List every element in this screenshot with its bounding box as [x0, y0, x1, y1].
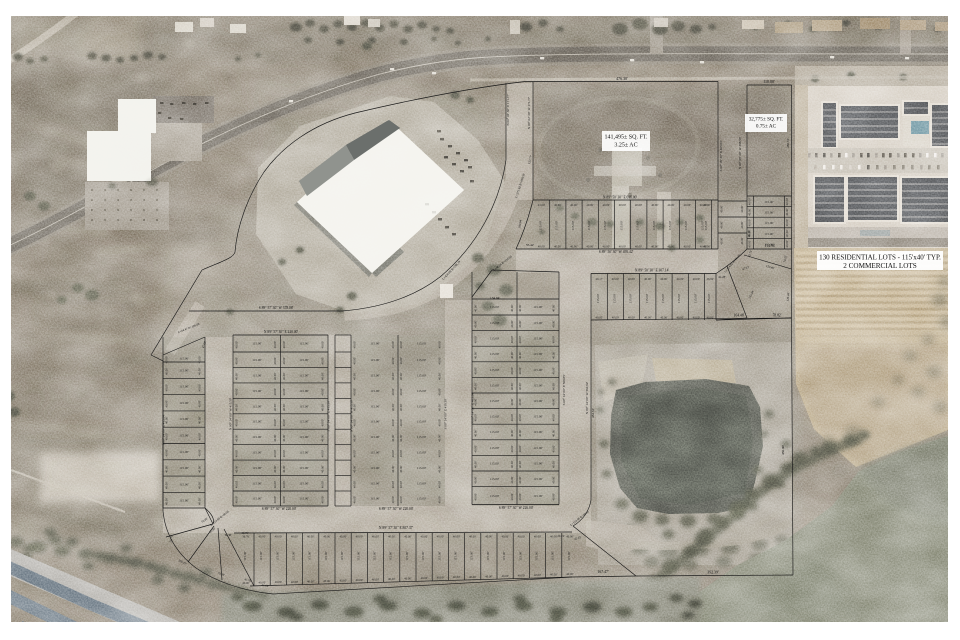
svg-text:40.00': 40.00'	[438, 434, 442, 442]
svg-text:40.00': 40.00'	[619, 203, 627, 207]
svg-text:115.00': 115.00'	[179, 482, 189, 486]
svg-text:115.00': 115.00'	[370, 420, 380, 424]
svg-text:40.00': 40.00'	[510, 493, 514, 501]
svg-text:40.00': 40.00'	[198, 497, 202, 505]
svg-text:115.00': 115.00'	[179, 368, 189, 372]
svg-text:115.00': 115.00'	[533, 494, 543, 498]
svg-text:40.00': 40.00'	[391, 480, 395, 488]
svg-text:40.00': 40.00'	[282, 449, 286, 457]
svg-text:36.76': 36.76'	[242, 535, 250, 539]
svg-text:115.00': 115.00'	[370, 373, 380, 377]
svg-text:34.38': 34.38'	[224, 533, 232, 537]
svg-text:40.00': 40.00'	[552, 351, 556, 359]
svg-text:40.00': 40.00'	[474, 398, 478, 406]
svg-text:141,495± SQ. FT.: 141,495± SQ. FT.	[604, 135, 648, 141]
svg-text:115.00': 115.00'	[764, 211, 774, 215]
svg-text:115.00': 115.00'	[437, 551, 441, 561]
svg-text:40.00': 40.00'	[644, 316, 652, 320]
svg-text:40.00': 40.00'	[485, 574, 493, 578]
svg-text:40.00': 40.00'	[391, 357, 395, 365]
svg-text:115.00': 115.00'	[324, 551, 328, 561]
svg-text:115.00': 115.00'	[490, 383, 500, 387]
svg-text:40.00': 40.00'	[323, 535, 331, 539]
svg-text:40.00': 40.00'	[720, 237, 724, 245]
svg-text:40.00': 40.00'	[282, 372, 286, 380]
svg-text:115.00': 115.00'	[299, 373, 309, 377]
svg-text:S 00° 14' 00" E 568.85': S 00° 14' 00" E 568.85'	[562, 374, 566, 405]
svg-text:40.00': 40.00'	[353, 465, 357, 473]
svg-text:40.00': 40.00'	[275, 535, 283, 539]
svg-text:115.00': 115.00'	[490, 415, 500, 419]
svg-text:40.00': 40.00'	[273, 357, 277, 365]
svg-text:115.00': 115.00'	[259, 551, 263, 561]
svg-text:40.00': 40.00'	[273, 480, 277, 488]
svg-text:115.00': 115.00'	[668, 220, 672, 230]
svg-text:115.00': 115.00'	[535, 551, 539, 561]
svg-text:110.00': 110.00'	[763, 79, 775, 84]
svg-text:40.00': 40.00'	[399, 480, 403, 488]
svg-text:115.00': 115.00'	[243, 551, 247, 561]
svg-text:40.00': 40.00'	[165, 367, 169, 375]
svg-text:115.00': 115.00'	[308, 551, 312, 561]
svg-text:40.00': 40.00'	[635, 245, 643, 249]
svg-text:40.00': 40.00'	[552, 320, 556, 328]
svg-text:167.47': 167.47'	[597, 570, 608, 574]
svg-text:115.00': 115.00'	[252, 373, 262, 377]
svg-text:40.00': 40.00'	[235, 434, 239, 442]
svg-text:115.00': 115.00'	[636, 220, 640, 230]
svg-text:40.00': 40.00'	[552, 413, 556, 421]
svg-text:40.00': 40.00'	[391, 372, 395, 380]
svg-text:40.00': 40.00'	[438, 372, 442, 380]
svg-text:40.00': 40.00'	[554, 203, 562, 207]
svg-text:40.00': 40.00'	[165, 497, 169, 505]
svg-text:40.00': 40.00'	[586, 245, 594, 249]
svg-text:40.00': 40.00'	[273, 372, 277, 380]
svg-text:40.00': 40.00'	[748, 208, 752, 216]
svg-text:130 RESIDENTIAL LOTS - 115'x40: 130 RESIDENTIAL LOTS - 115'x40' TYP.	[819, 254, 941, 262]
svg-text:115.00': 115.00'	[652, 220, 656, 230]
svg-text:115.00': 115.00'	[490, 321, 500, 325]
svg-text:40.00': 40.00'	[550, 573, 558, 577]
svg-text:115.00': 115.00'	[417, 358, 427, 362]
svg-text:40.00': 40.00'	[391, 449, 395, 457]
svg-text:40.00': 40.00'	[258, 581, 266, 585]
svg-text:40.00': 40.00'	[391, 341, 395, 349]
svg-text:40.00': 40.00'	[391, 434, 395, 442]
svg-text:40.00': 40.00'	[273, 388, 277, 396]
svg-text:40.00': 40.00'	[785, 219, 789, 227]
svg-text:40.00': 40.00'	[518, 382, 522, 390]
svg-text:115.00': 115.00'	[179, 417, 189, 421]
svg-text:40.00': 40.00'	[235, 496, 239, 504]
svg-text:40.00': 40.00'	[602, 203, 610, 207]
svg-text:40.00': 40.00'	[566, 535, 574, 539]
svg-text:40.00': 40.00'	[619, 245, 627, 249]
svg-text:115.00': 115.00'	[518, 551, 522, 561]
svg-text:40.00': 40.00'	[235, 480, 239, 488]
svg-text:115.00': 115.00'	[490, 494, 500, 498]
svg-text:40.00': 40.00'	[693, 316, 701, 320]
svg-text:40.00': 40.00'	[165, 384, 169, 392]
svg-text:40.00': 40.00'	[534, 573, 542, 577]
svg-text:40.00': 40.00'	[353, 372, 357, 380]
svg-text:392.39': 392.39'	[707, 571, 718, 575]
svg-text:40.00': 40.00'	[420, 535, 428, 539]
svg-text:40.00': 40.00'	[273, 434, 277, 442]
svg-text:40.00': 40.00'	[748, 229, 752, 237]
svg-text:40.00': 40.00'	[437, 535, 445, 539]
svg-text:40.00': 40.00'	[474, 367, 478, 375]
svg-text:40.00': 40.00'	[510, 413, 514, 421]
svg-text:40.00': 40.00'	[391, 419, 395, 427]
svg-text:115.00': 115.00'	[417, 404, 427, 408]
svg-text:115.00': 115.00'	[533, 477, 543, 481]
svg-text:115.00': 115.00'	[179, 450, 189, 454]
svg-text:115.00': 115.00'	[299, 420, 309, 424]
svg-text:40.00': 40.00'	[282, 341, 286, 349]
svg-text:40.00': 40.00'	[321, 372, 325, 380]
svg-text:40.00': 40.00'	[518, 351, 522, 359]
svg-text:40.00': 40.00'	[453, 575, 461, 579]
svg-text:0.75± AC: 0.75± AC	[756, 124, 777, 130]
svg-text:40.00': 40.00'	[651, 203, 659, 207]
svg-text:S 89° 57' 30" W 378.08': S 89° 57' 30" W 378.08'	[259, 306, 294, 310]
svg-text:40.00': 40.00'	[307, 535, 315, 539]
svg-text:40.00': 40.00'	[676, 277, 684, 281]
svg-text:115.00': 115.00'	[533, 461, 543, 465]
svg-text:120.44': 120.44'	[786, 292, 791, 302]
svg-text:115.00': 115.00'	[603, 220, 607, 230]
svg-text:45.00': 45.00'	[703, 203, 711, 207]
svg-text:40.00': 40.00'	[353, 419, 357, 427]
svg-text:40.00': 40.00'	[235, 403, 239, 411]
svg-text:115.00': 115.00'	[677, 293, 681, 303]
svg-text:40.00': 40.00'	[667, 203, 675, 207]
svg-text:40.00': 40.00'	[273, 419, 277, 427]
svg-text:40.00': 40.00'	[307, 579, 315, 583]
svg-text:40.00': 40.00'	[510, 476, 514, 484]
svg-text:115.00': 115.00'	[179, 434, 189, 438]
svg-text:40.00': 40.00'	[474, 351, 478, 359]
svg-text:40.00': 40.00'	[518, 493, 522, 501]
svg-text:40.00': 40.00'	[282, 388, 286, 396]
svg-text:115.00': 115.00'	[252, 435, 262, 439]
svg-text:115.00': 115.00'	[612, 293, 616, 303]
svg-text:40.00': 40.00'	[165, 356, 169, 364]
svg-text:40.00': 40.00'	[165, 416, 169, 424]
svg-text:40.00': 40.00'	[510, 320, 514, 328]
svg-text:115.00': 115.00'	[252, 389, 262, 393]
svg-text:40.00': 40.00'	[198, 449, 202, 457]
svg-text:40.00': 40.00'	[353, 388, 357, 396]
svg-text:20.21': 20.21'	[557, 534, 565, 538]
svg-text:40.00': 40.00'	[474, 460, 478, 468]
svg-text:115.00': 115.00'	[252, 404, 262, 408]
svg-text:40.00': 40.00'	[566, 572, 574, 576]
svg-text:115.00': 115.00'	[490, 368, 500, 372]
svg-text:104.48': 104.48'	[734, 314, 745, 318]
svg-text:40.00': 40.00'	[321, 403, 325, 411]
svg-text:115.00': 115.00'	[252, 466, 262, 470]
svg-text:40.00': 40.00'	[198, 384, 202, 392]
svg-text:115.00': 115.00'	[567, 551, 571, 561]
svg-text:40.00': 40.00'	[353, 434, 357, 442]
svg-text:115.00': 115.00'	[252, 451, 262, 455]
svg-text:40.17': 40.17'	[595, 277, 603, 281]
svg-text:280.31': 280.31'	[786, 138, 790, 148]
svg-text:40.00': 40.00'	[353, 341, 357, 349]
svg-text:40.00': 40.00'	[510, 460, 514, 468]
svg-text:40.00': 40.00'	[501, 535, 509, 539]
svg-text:115.00': 115.00'	[502, 551, 506, 561]
svg-text:40.00': 40.00'	[554, 245, 562, 249]
svg-text:40.00': 40.00'	[399, 403, 403, 411]
svg-text:40.00': 40.00'	[353, 496, 357, 504]
svg-text:115.00': 115.00'	[490, 399, 500, 403]
svg-text:115.00': 115.00'	[490, 477, 500, 481]
svg-text:40.00': 40.00'	[474, 304, 478, 312]
svg-text:40.00': 40.00'	[372, 535, 380, 539]
svg-text:40.00': 40.00'	[501, 574, 509, 578]
svg-text:40.00': 40.00'	[321, 357, 325, 365]
svg-text:40.00': 40.00'	[595, 316, 603, 320]
svg-text:40.00': 40.00'	[399, 419, 403, 427]
svg-text:40.00': 40.00'	[602, 245, 610, 249]
svg-text:40.00': 40.00'	[235, 372, 239, 380]
svg-text:40.00': 40.00'	[474, 429, 478, 437]
svg-text:40.00': 40.00'	[518, 429, 522, 437]
svg-text:115.00': 115.00'	[764, 232, 774, 236]
svg-text:40.00': 40.00'	[420, 576, 428, 580]
svg-text:40.00': 40.00'	[321, 480, 325, 488]
svg-text:40.00': 40.00'	[518, 335, 522, 343]
svg-text:40.00': 40.00'	[720, 221, 724, 229]
svg-text:115.00': 115.00'	[370, 482, 380, 486]
svg-text:40.00': 40.00'	[235, 341, 239, 349]
svg-text:115.00': 115.00'	[417, 482, 427, 486]
svg-text:40.00': 40.00'	[748, 197, 752, 205]
svg-text:115.00': 115.00'	[340, 551, 344, 561]
svg-text:40.00': 40.00'	[635, 203, 643, 207]
svg-text:40.00': 40.00'	[748, 240, 752, 248]
svg-text:115.00': 115.00'	[490, 446, 500, 450]
svg-text:115.00': 115.00'	[417, 466, 427, 470]
svg-text:115.00': 115.00'	[179, 385, 189, 389]
svg-text:40.00': 40.00'	[339, 535, 347, 539]
svg-text:41.00': 41.00'	[538, 203, 546, 207]
svg-text:40.00': 40.00'	[275, 580, 283, 584]
svg-text:40.00': 40.00'	[552, 382, 556, 390]
svg-text:115.00': 115.00'	[417, 435, 427, 439]
svg-text:115.00': 115.00'	[538, 220, 542, 230]
svg-text:40.00': 40.00'	[437, 576, 445, 580]
svg-text:40.00': 40.00'	[518, 320, 522, 328]
svg-text:40.00': 40.00'	[707, 316, 715, 320]
svg-text:55.42': 55.42'	[526, 243, 535, 247]
svg-text:40.00': 40.00'	[399, 434, 403, 442]
svg-text:40.00': 40.00'	[552, 304, 556, 312]
svg-text:40.00': 40.00'	[438, 357, 442, 365]
svg-text:40.00': 40.00'	[438, 388, 442, 396]
svg-text:115.00': 115.00'	[684, 220, 688, 230]
svg-text:40.00': 40.00'	[391, 403, 395, 411]
svg-text:S 89° 57' 30" W 226.00': S 89° 57' 30" W 226.00'	[499, 506, 534, 510]
svg-text:40.00': 40.00'	[399, 496, 403, 504]
svg-text:40.00': 40.00'	[235, 465, 239, 473]
svg-text:40.00': 40.00'	[356, 535, 364, 539]
svg-text:115.00': 115.00'	[252, 358, 262, 362]
svg-text:115.00': 115.00'	[299, 435, 309, 439]
svg-text:115.00': 115.00'	[299, 466, 309, 470]
svg-text:40.00': 40.00'	[474, 445, 478, 453]
svg-text:115.00': 115.00'	[490, 337, 500, 341]
svg-text:115.00': 115.00'	[179, 466, 189, 470]
svg-text:2 COMMERCIAL LOTS: 2 COMMERCIAL LOTS	[843, 262, 917, 270]
svg-text:78.82': 78.82'	[773, 314, 782, 318]
svg-text:40.00': 40.00'	[740, 237, 744, 245]
svg-text:40.00': 40.00'	[785, 229, 789, 237]
svg-text:115.00': 115.00'	[370, 342, 380, 346]
svg-text:115.00': 115.00'	[454, 551, 458, 561]
svg-text:N 00° 14' 00" W 415.59': N 00° 14' 00" W 415.59'	[229, 397, 233, 430]
svg-text:40.00': 40.00'	[198, 465, 202, 473]
svg-text:40.00': 40.00'	[474, 476, 478, 484]
svg-text:40.00': 40.00'	[612, 316, 620, 320]
svg-text:115.00': 115.00'	[533, 352, 543, 356]
svg-text:40.00': 40.00'	[510, 382, 514, 390]
svg-text:40.00': 40.00'	[469, 535, 477, 539]
svg-text:115.00': 115.00'	[417, 451, 427, 455]
svg-text:450.00': 450.00'	[781, 445, 785, 455]
svg-text:40.00': 40.00'	[518, 413, 522, 421]
svg-text:40.00': 40.00'	[353, 480, 357, 488]
svg-text:115.00': 115.00'	[405, 551, 409, 561]
svg-text:S 00° 14' 00" E 419.59': S 00° 14' 00" E 419.59'	[444, 398, 448, 429]
svg-text:40.00': 40.00'	[399, 372, 403, 380]
svg-text:26.99': 26.99'	[707, 277, 715, 281]
svg-text:N 89° 50' 30" E 696.00': N 89° 50' 30" E 696.00'	[603, 196, 637, 200]
svg-text:40.00': 40.00'	[388, 577, 396, 581]
svg-text:115.00': 115.00'	[533, 383, 543, 387]
svg-text:40.00': 40.00'	[235, 357, 239, 365]
svg-text:115.00': 115.00'	[707, 293, 711, 303]
svg-text:115.00': 115.00'	[533, 415, 543, 419]
svg-text:115.00': 115.00'	[299, 482, 309, 486]
svg-text:115.00': 115.00'	[179, 401, 189, 405]
svg-text:115.00': 115.00'	[571, 220, 575, 230]
svg-text:40.00': 40.00'	[391, 465, 395, 473]
svg-text:115.00': 115.00'	[490, 430, 500, 434]
svg-text:115.00': 115.00'	[370, 435, 380, 439]
svg-text:40.00': 40.00'	[660, 316, 668, 320]
svg-text:40.00': 40.00'	[518, 367, 522, 375]
svg-text:41.28': 41.28'	[718, 275, 726, 279]
svg-text:40.00': 40.00'	[518, 398, 522, 406]
svg-text:115.00': 115.00'	[292, 551, 296, 561]
svg-text:115.00': 115.00'	[370, 497, 380, 501]
svg-text:115.00': 115.00'	[299, 342, 309, 346]
svg-text:40.00': 40.00'	[628, 277, 636, 281]
svg-text:40.00': 40.00'	[353, 449, 357, 457]
svg-text:N 00° 09' 30" W 398.56': N 00° 09' 30" W 398.56'	[738, 136, 742, 169]
svg-text:40.00': 40.00'	[353, 357, 357, 365]
svg-text:115.00': 115.00'	[299, 404, 309, 408]
svg-text:115.00': 115.00'	[486, 551, 490, 561]
svg-text:115.00': 115.00'	[299, 497, 309, 501]
svg-text:40.00': 40.00'	[644, 277, 652, 281]
svg-text:S 89° 50' 30" W 495.42': S 89° 50' 30" W 495.42'	[599, 250, 634, 254]
svg-text:40.00': 40.00'	[282, 419, 286, 427]
svg-text:115.00': 115.00'	[693, 293, 697, 303]
svg-text:40.00': 40.00'	[785, 208, 789, 216]
svg-text:115.00': 115.00'	[533, 399, 543, 403]
svg-text:40.00': 40.00'	[198, 356, 202, 364]
svg-text:40.00': 40.00'	[404, 535, 412, 539]
svg-text:40.00': 40.00'	[321, 449, 325, 457]
svg-text:115.00': 115.00'	[533, 321, 543, 325]
svg-text:115.00': 115.00'	[551, 551, 555, 561]
svg-text:115.00': 115.00'	[179, 357, 189, 361]
svg-text:115.00': 115.00'	[533, 430, 543, 434]
svg-text:134.64': 134.64'	[490, 296, 500, 300]
svg-text:40.00': 40.00'	[321, 465, 325, 473]
svg-text:40.00': 40.00'	[198, 400, 202, 408]
svg-text:40.00': 40.00'	[785, 240, 789, 248]
svg-text:40.00': 40.00'	[438, 419, 442, 427]
svg-text:476.30': 476.30'	[616, 76, 628, 81]
svg-text:40.00': 40.00'	[518, 460, 522, 468]
svg-text:40.00': 40.00'	[510, 445, 514, 453]
svg-text:40.00': 40.00'	[518, 445, 522, 453]
svg-text:40.00': 40.00'	[235, 449, 239, 457]
svg-text:40.00': 40.00'	[399, 357, 403, 365]
svg-text:40.00': 40.00'	[438, 496, 442, 504]
svg-text:40.00': 40.00'	[399, 341, 403, 349]
svg-text:40.00': 40.00'	[235, 388, 239, 396]
svg-text:115.00': 115.00'	[704, 220, 708, 230]
svg-text:115.00': 115.00'	[299, 358, 309, 362]
svg-text:40.00': 40.00'	[321, 388, 325, 396]
svg-text:40.00': 40.00'	[740, 221, 744, 229]
svg-text:40.00': 40.00'	[282, 496, 286, 504]
svg-text:40.00': 40.00'	[552, 429, 556, 437]
svg-text:115.00': 115.00'	[645, 293, 649, 303]
svg-text:40.00': 40.00'	[438, 341, 442, 349]
svg-text:40.00': 40.00'	[518, 573, 526, 577]
svg-text:115.00': 115.00'	[252, 497, 262, 501]
svg-text:40.00': 40.00'	[518, 304, 522, 312]
svg-text:40.00': 40.00'	[552, 398, 556, 406]
svg-text:115.00': 115.00'	[417, 373, 427, 377]
svg-text:40.00': 40.00'	[391, 496, 395, 504]
svg-text:40.00': 40.00'	[538, 245, 546, 249]
svg-text:115.00': 115.00'	[275, 551, 279, 561]
svg-text:40.00': 40.00'	[586, 203, 594, 207]
svg-text:40.00': 40.00'	[628, 316, 636, 320]
svg-text:40.00': 40.00'	[550, 535, 558, 539]
svg-text:40.00': 40.00'	[198, 416, 202, 424]
svg-text:40.00': 40.00'	[510, 335, 514, 343]
svg-text:115.00': 115.00'	[252, 482, 262, 486]
svg-text:40.00': 40.00'	[518, 535, 526, 539]
svg-text:40.00': 40.00'	[785, 197, 789, 205]
svg-text:40.00': 40.00'	[165, 400, 169, 408]
svg-text:40.00': 40.00'	[198, 432, 202, 440]
svg-text:40.00': 40.00'	[748, 219, 752, 227]
svg-text:40.00': 40.00'	[570, 203, 578, 207]
svg-text:115.00': 115.00'	[417, 342, 427, 346]
